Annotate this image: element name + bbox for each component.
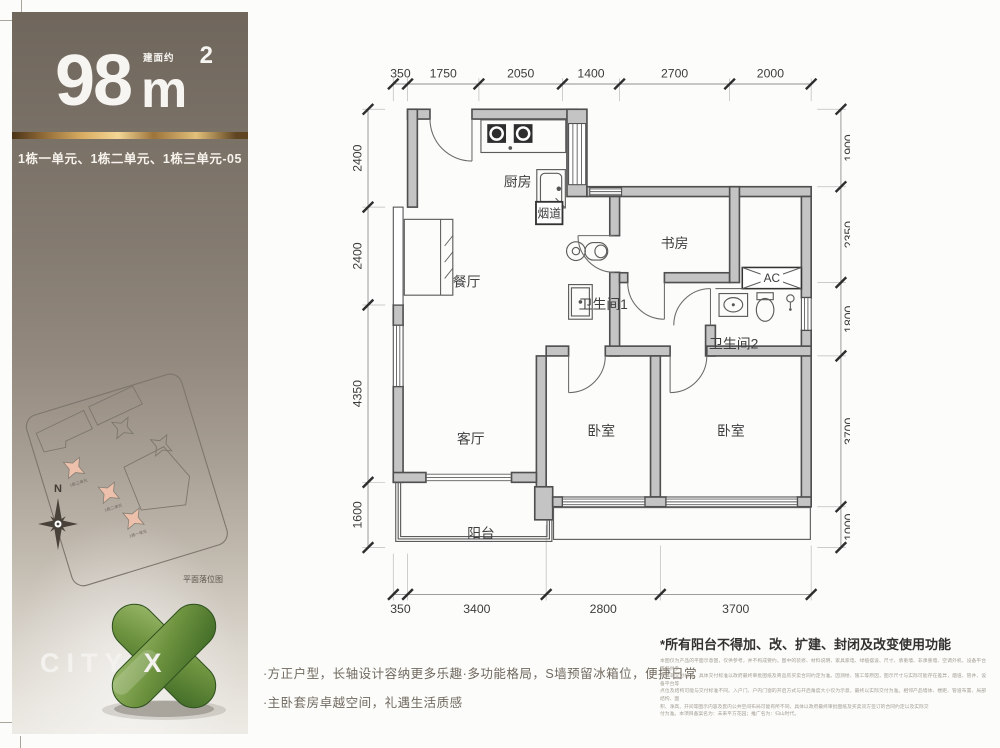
washbasin-icon bbox=[567, 242, 586, 261]
dimension-labels: 350 1750 2050 1400 2700 2000 2400 2400 4… bbox=[350, 66, 850, 615]
disclaimer-line: 点位及结构可能与交付标准不同。入户门、户内门窗的开启方式与开启角度大小仅为示意，… bbox=[660, 688, 986, 703]
dim-label: 350 bbox=[390, 66, 411, 80]
room-label-ac: AC bbox=[764, 271, 781, 285]
gold-divider bbox=[12, 132, 248, 139]
brand-sidebar: 98 m 建面约 2 1栋一单元、1栋二单元、1栋三单元-05 1栋三单元 1栋… bbox=[12, 12, 248, 734]
feature-notes: ·方正户型，长轴设计容纳更多乐趣·多功能格局，S墙预留冰箱位，便捷日常 ·主卧套… bbox=[263, 660, 697, 718]
dim-label: 2800 bbox=[590, 602, 617, 616]
disclaimer-text: 本图仅为产品的平面示意图，仅供参考，并不构成要约。图中的装修、材料说明、家具家电… bbox=[660, 658, 986, 719]
logo-text: CITY X bbox=[40, 648, 169, 679]
disclaimer-line: 考，非交付标准。具体交付标准以政府最终审批图纸及商品房买卖合同约定为准。因测绘、… bbox=[660, 673, 986, 688]
area-value: 98 bbox=[55, 46, 131, 116]
dim-label: 2350 bbox=[842, 221, 850, 248]
dim-label: 1750 bbox=[430, 66, 457, 80]
area-prefix: 建面约 bbox=[143, 50, 175, 64]
room-label-living: 客厅 bbox=[457, 431, 485, 447]
room-label-bedroom: 卧室 bbox=[717, 422, 745, 438]
floor-plan: 350 1750 2050 1400 2700 2000 2400 2400 4… bbox=[330, 42, 850, 625]
dim-label: 1900 bbox=[842, 134, 850, 161]
building-label: 1栋三单元 bbox=[69, 477, 88, 488]
feature-note-line: ·方正户型，长轴设计容纳更多乐趣·多功能格局，S墙预留冰箱位，便捷日常 bbox=[263, 660, 697, 689]
building-label: 1栋一单元 bbox=[128, 527, 147, 538]
feature-note-line: ·主卧套房卓越空间，礼遇生活质感 bbox=[263, 689, 697, 718]
dim-label: 1600 bbox=[350, 501, 364, 528]
dim-label: 3700 bbox=[842, 418, 850, 445]
room-label-balcony: 阳台 bbox=[467, 525, 495, 541]
unit-listing: 1栋一单元、1栋二单元、1栋三单元-05 bbox=[12, 148, 248, 167]
dim-label: 3400 bbox=[463, 602, 490, 616]
site-plan-caption: 平面落位图 bbox=[183, 574, 223, 584]
windows bbox=[393, 124, 811, 507]
dim-label: 1400 bbox=[577, 66, 604, 80]
room-label-bath2: 卫生间2 bbox=[709, 336, 759, 352]
dim-label: 2000 bbox=[757, 66, 784, 80]
walls bbox=[393, 109, 811, 520]
dim-label: 2400 bbox=[350, 242, 364, 269]
dimension-lines bbox=[368, 84, 841, 594]
area-unit: m bbox=[141, 64, 187, 116]
dim-label: 2700 bbox=[661, 66, 688, 80]
site-plan: 1栋三单元 1栋二单元 1栋一单元 N 平面落位图 bbox=[20, 370, 240, 600]
dim-label: 350 bbox=[390, 602, 411, 616]
disclaimer-line: 积、净高、开间等图示内容及套内公共空间布局可能有所不同，具体以政府最终审批图纸及… bbox=[660, 704, 986, 712]
disclaimer-line: 付为准。本项目备案名为：未来平方花园；推广名为：归山时代。 bbox=[660, 711, 986, 719]
dim-label: 3700 bbox=[722, 602, 749, 616]
room-label-bedroom: 卧室 bbox=[587, 422, 615, 438]
room-label-flue: 烟道 bbox=[537, 207, 561, 221]
site-plan-boundary: 1栋三单元 1栋二单元 1栋一单元 bbox=[23, 371, 230, 589]
dim-label: 1000 bbox=[842, 513, 850, 540]
room-label-bath1: 卫生间1 bbox=[579, 296, 629, 312]
building-label: 1栋二单元 bbox=[104, 502, 123, 513]
dim-label: 2050 bbox=[507, 66, 534, 80]
area-superscript: 2 bbox=[200, 42, 213, 70]
crop-mark bbox=[20, 736, 21, 748]
dim-label: 1800 bbox=[842, 305, 850, 332]
disclaimer-line: 本图仅为产品的平面示意图，仅供参考，并不构成要约。图中的装修、材料说明、家具家电… bbox=[660, 658, 986, 673]
dim-label: 2400 bbox=[350, 144, 364, 171]
dim-label: 4350 bbox=[350, 380, 364, 407]
toilet-icon bbox=[585, 243, 608, 261]
compass-icon: N bbox=[38, 483, 78, 550]
room-label-dining: 餐厅 bbox=[453, 274, 481, 290]
room-label-kitchen: 厨房 bbox=[504, 174, 532, 190]
dimension-ticks bbox=[363, 79, 847, 600]
extension-lines bbox=[362, 78, 846, 600]
disclaimer-title: *所有阳台不得加、改、扩建、封闭及改变使用功能 bbox=[660, 634, 951, 653]
room-label-study: 书房 bbox=[661, 235, 689, 251]
shower-icon bbox=[787, 295, 794, 302]
compass-north-label: N bbox=[54, 483, 62, 495]
area-figure: 98 m 建面约 2 bbox=[55, 46, 205, 120]
